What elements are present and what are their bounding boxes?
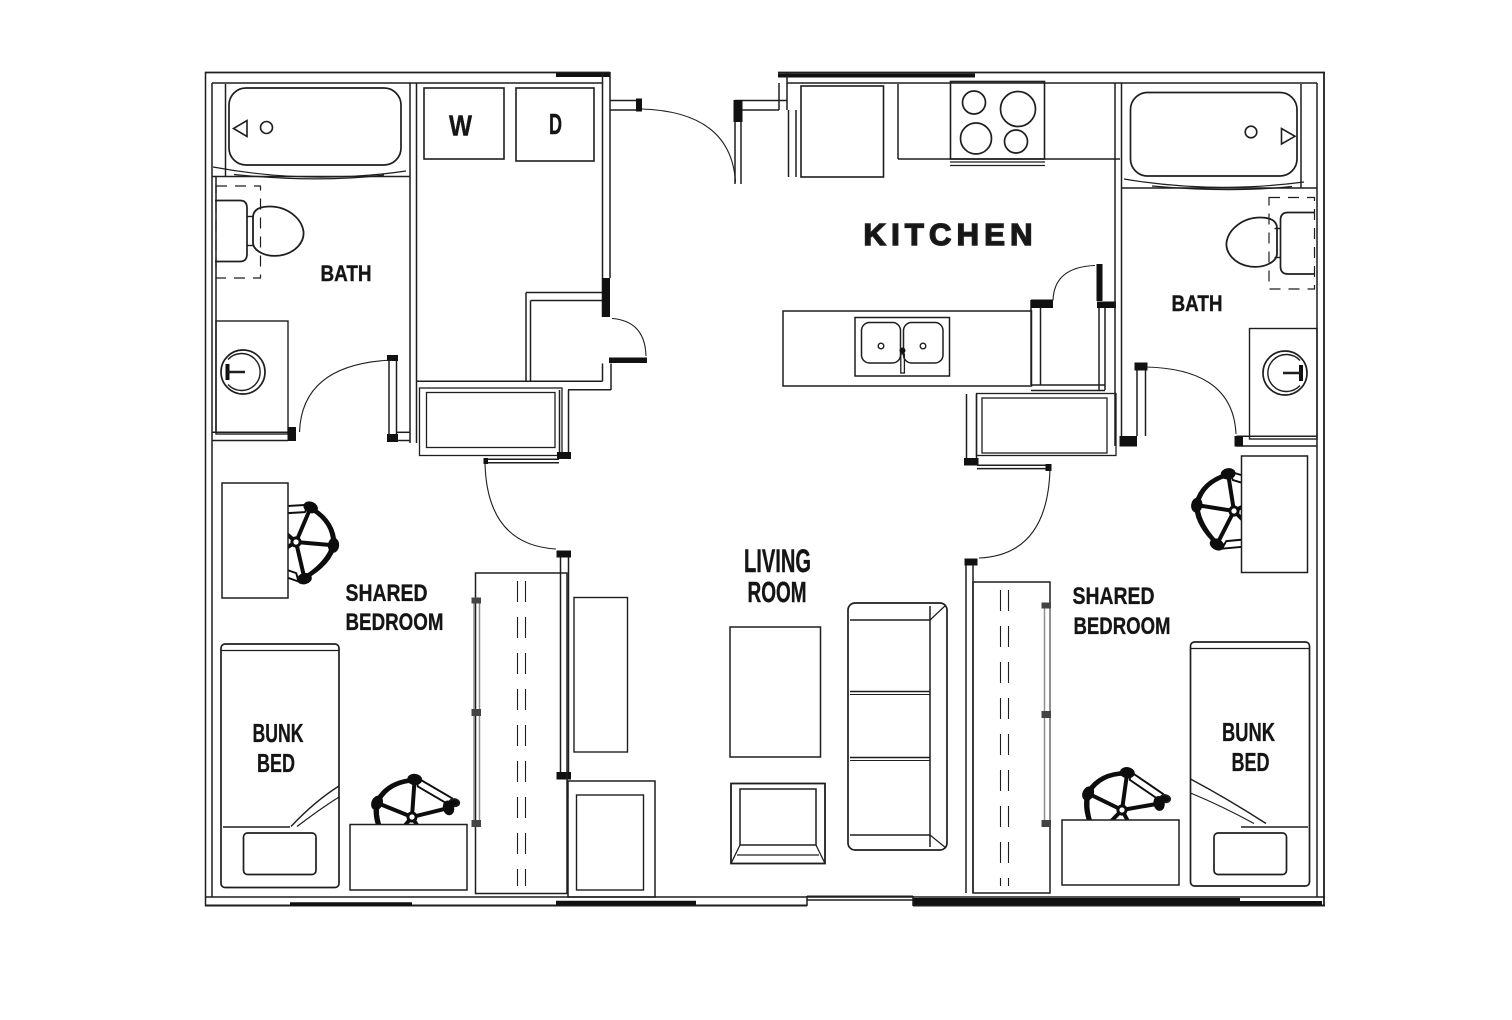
- svg-text:BATH: BATH: [1172, 291, 1223, 316]
- svg-text:BUNK: BUNK: [1222, 717, 1275, 747]
- svg-text:D: D: [549, 109, 562, 141]
- svg-text:BATH: BATH: [321, 261, 372, 286]
- svg-text:BED: BED: [257, 748, 295, 778]
- svg-text:BED: BED: [1232, 747, 1270, 777]
- svg-text:SHARED: SHARED: [1073, 583, 1155, 610]
- svg-text:SHARED: SHARED: [346, 580, 428, 607]
- svg-text:ROOM: ROOM: [748, 577, 807, 609]
- svg-text:BUNK: BUNK: [253, 718, 304, 748]
- svg-text:BEDROOM: BEDROOM: [346, 609, 444, 636]
- svg-text:BEDROOM: BEDROOM: [1074, 613, 1171, 640]
- svg-text:LIVING: LIVING: [744, 543, 811, 579]
- svg-text:W: W: [449, 111, 473, 143]
